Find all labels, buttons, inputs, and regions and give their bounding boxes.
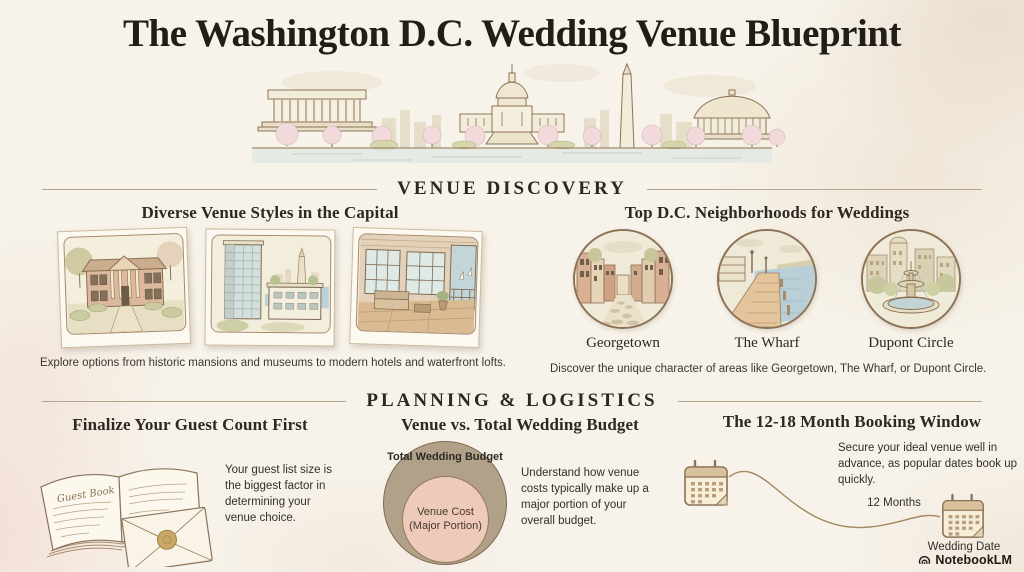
- infographic-canvas: The Washington D.C. Wedding Venue Bluepr…: [0, 0, 1024, 572]
- divider-rule: [678, 401, 982, 402]
- brand-name: NotebookLM: [935, 553, 1012, 567]
- neighborhood-label-the-wharf: The Wharf: [706, 335, 828, 352]
- booking-window-block: The 12-18 Month Booking Window Secure yo…: [680, 412, 1024, 572]
- dupont-fountain-illustration: [863, 231, 959, 327]
- list-item-dupont-circle: Dupont Circle: [850, 229, 972, 352]
- budget-total-label: Total Wedding Budget: [384, 451, 506, 465]
- neighborhoods-block: Top D.C. Neighborhoods for Weddings: [550, 203, 984, 375]
- page-title: The Washington D.C. Wedding Venue Bluepr…: [0, 11, 1024, 56]
- calendar-icon: [940, 492, 986, 542]
- neighborhood-label-dupont-circle: Dupont Circle: [850, 335, 972, 352]
- dc-skyline-illustration: [232, 60, 792, 166]
- neighborhood-label-georgetown: Georgetown: [562, 335, 684, 352]
- guest-count-heading: Finalize Your Guest Count First: [25, 415, 355, 435]
- polaroid-modern-hotel: [204, 228, 335, 346]
- neighborhoods-heading: Top D.C. Neighborhoods for Weddings: [550, 203, 984, 223]
- neighborhood-list: Georgetown: [550, 229, 984, 352]
- budget-venue-circle: Venue Cost (Major Portion): [402, 476, 489, 563]
- budget-venue-label: Venue Cost (Major Portion): [406, 506, 486, 534]
- notebooklm-logo-icon: [918, 554, 931, 567]
- historic-mansion-illustration: [64, 234, 185, 334]
- venue-styles-block: Diverse Venue Styles in the Capital: [40, 203, 500, 369]
- section-title-venue-discovery: VENUE DISCOVERY: [397, 178, 627, 200]
- divider-rule: [42, 189, 377, 190]
- venue-styles-caption: Explore options from historic mansions a…: [40, 357, 500, 369]
- guest-count-block: Finalize Your Guest Count First Guest Bo…: [25, 415, 355, 572]
- booking-milestone-label: 12 Months: [866, 496, 922, 511]
- modern-hotel-illustration: [212, 235, 331, 332]
- venue-style-photos: [40, 229, 500, 346]
- polaroid-waterfront-loft: [349, 227, 483, 348]
- budget-heading: Venue vs. Total Wedding Budget: [375, 415, 665, 435]
- section-title-planning-logistics: PLANNING & LOGISTICS: [366, 390, 657, 412]
- divider-rule: [647, 189, 982, 190]
- budget-body: Understand how venue costs typically mak…: [521, 465, 661, 529]
- divider-rule: [42, 401, 346, 402]
- section-divider-venue-discovery: VENUE DISCOVERY: [42, 178, 982, 200]
- budget-block: Venue vs. Total Wedding Budget Total Wed…: [375, 415, 665, 572]
- polaroid-historic-mansion: [57, 227, 191, 348]
- guest-book-and-envelope-illustration: Guest Book: [25, 441, 223, 567]
- list-item-georgetown: Georgetown: [562, 229, 684, 352]
- venue-styles-heading: Diverse Venue Styles in the Capital: [40, 203, 500, 223]
- georgetown-street-illustration: [575, 231, 671, 327]
- waterfront-loft-illustration: [357, 234, 478, 334]
- section-divider-planning-logistics: PLANNING & LOGISTICS: [42, 390, 982, 412]
- guest-count-body: Your guest list size is the biggest fact…: [225, 462, 345, 526]
- wharf-boardwalk-illustration: [719, 231, 815, 327]
- list-item-the-wharf: The Wharf: [706, 229, 828, 352]
- neighborhoods-caption: Discover the unique character of areas l…: [550, 363, 984, 375]
- brand-watermark: NotebookLM: [918, 553, 1012, 567]
- booking-heading: The 12-18 Month Booking Window: [680, 412, 1024, 432]
- budget-total-circle: Total Wedding Budget Venue Cost (Major P…: [383, 441, 507, 565]
